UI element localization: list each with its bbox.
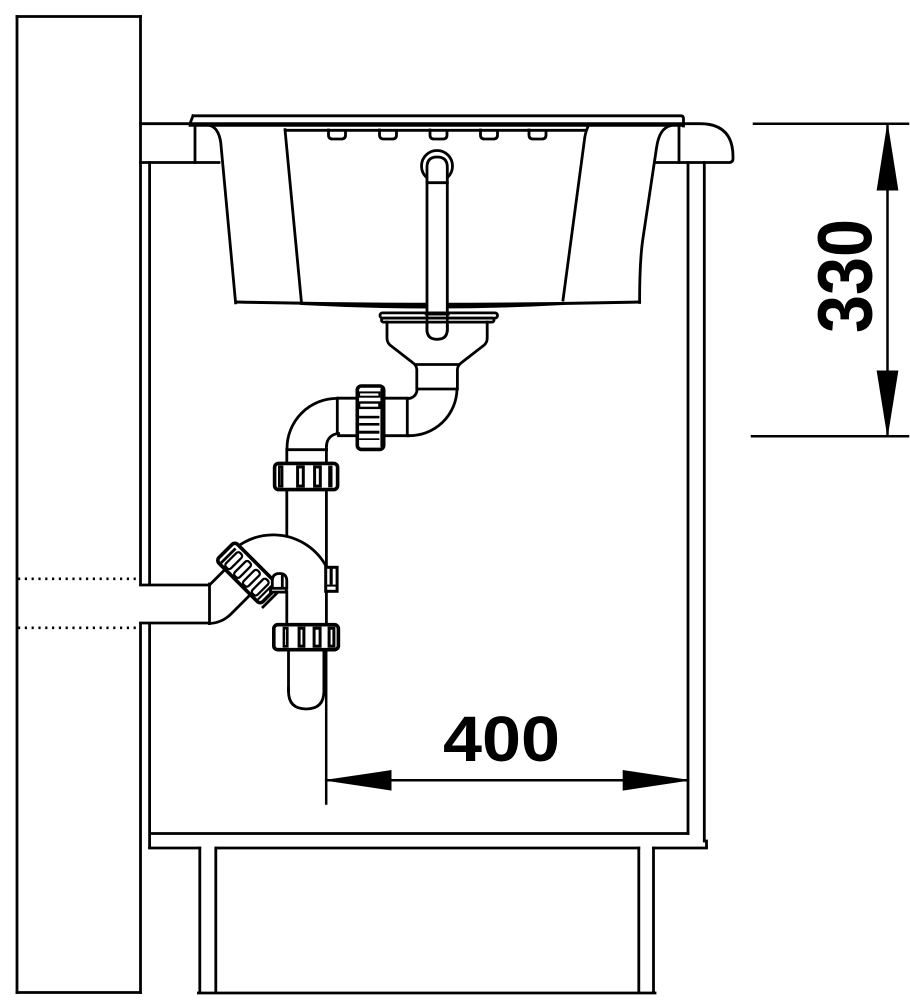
svg-text:330: 330 (803, 219, 889, 333)
svg-text:400: 400 (443, 703, 560, 775)
